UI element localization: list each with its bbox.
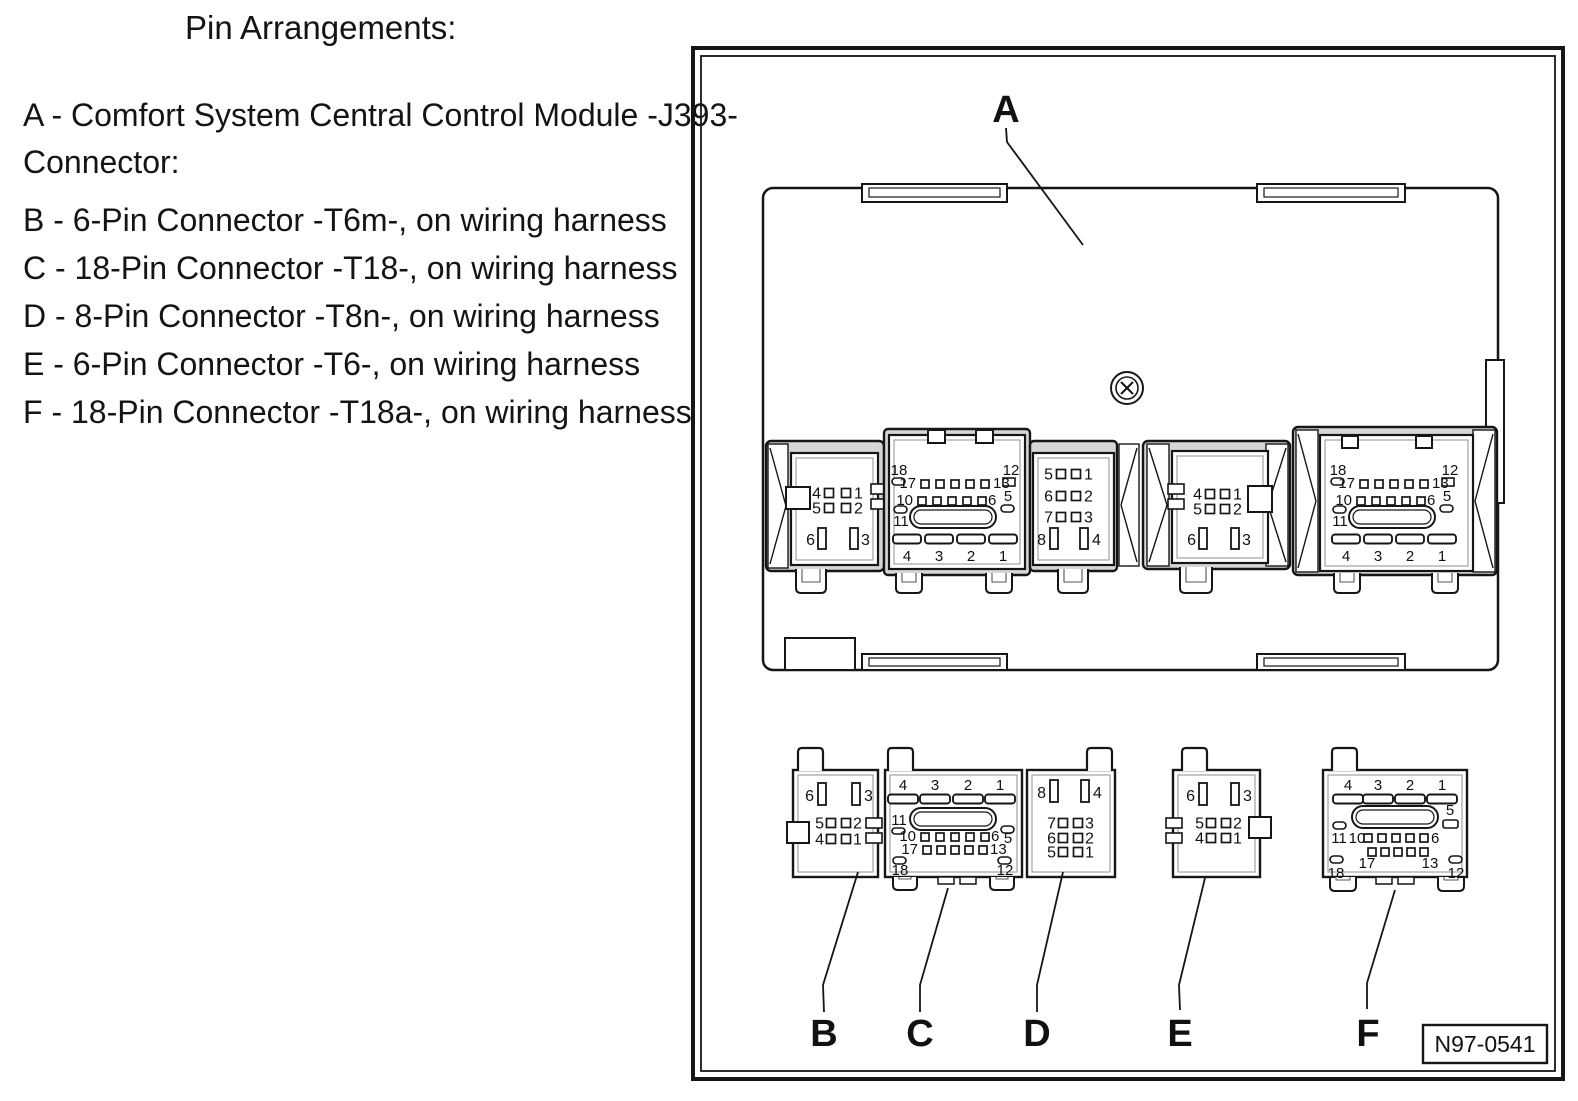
pin-label: 2 (1084, 489, 1093, 506)
leader-e (1179, 878, 1205, 1010)
latch-mark (1168, 484, 1184, 494)
label-a: A (992, 89, 1019, 131)
pin-contact (981, 833, 989, 841)
plug-b: 635241 (787, 748, 882, 877)
latch-wing (1296, 430, 1318, 572)
pin-label: 1 (1084, 467, 1093, 484)
module-socket-f: 181217131065114321 (1293, 427, 1497, 593)
module-tab (1257, 184, 1405, 202)
pin-label: 4 (899, 777, 907, 794)
pin-label: 6 (1044, 489, 1053, 506)
pin-blade (920, 795, 950, 804)
pin-contact (1387, 497, 1395, 505)
pin-blade (1333, 795, 1363, 804)
pin-contact-oval (1449, 856, 1462, 863)
pin-contact-tall (1199, 783, 1207, 805)
module-tab (1257, 654, 1405, 670)
pin-contact (1417, 497, 1425, 505)
pin-contact (842, 819, 851, 828)
pin-contact-oval (1333, 822, 1346, 829)
module-tab (862, 654, 1007, 670)
pin-contact (936, 833, 944, 841)
pin-label: 6 (1431, 830, 1439, 847)
pin-contact-tall (1050, 528, 1058, 549)
pin-contact (1059, 819, 1068, 828)
pin-blade (985, 795, 1015, 804)
pin-contact (1074, 834, 1083, 843)
pin-contact (1402, 497, 1410, 505)
module-socket-d: 51627384 (1030, 441, 1117, 593)
key-notch (1342, 436, 1358, 448)
pin-contact (979, 846, 987, 854)
pin-label: 1 (999, 548, 1007, 565)
pin-label: 2 (1406, 548, 1414, 565)
pin-contact (1360, 480, 1368, 488)
pin-contact-tall (1199, 528, 1207, 549)
pin-label: 6 (805, 788, 814, 805)
mount-bump (960, 877, 976, 884)
pin-label: 3 (864, 788, 873, 805)
pin-label: 6 (806, 532, 815, 549)
pin-label: 4 (1093, 785, 1102, 802)
label-c: C (906, 1013, 933, 1055)
pin-contact (965, 846, 973, 854)
pin-label: 11 (891, 812, 907, 829)
mount-foot (1334, 573, 1360, 593)
leader-f (1367, 890, 1395, 1009)
pin-label: 8 (1037, 532, 1046, 549)
pin-contact-tall (1231, 783, 1239, 805)
pin-contact (1206, 490, 1215, 499)
pin-label: 4 (1092, 532, 1101, 549)
key-slot (1349, 506, 1435, 528)
pin-label: 17 (1359, 855, 1376, 872)
mount-foot (1058, 569, 1088, 593)
pin-contact (825, 489, 834, 498)
pin-contact-tall (852, 783, 860, 805)
mount-bump (1376, 877, 1392, 884)
pin-contact (827, 819, 836, 828)
pin-label: 4 (1344, 777, 1352, 794)
pin-contact (1378, 834, 1386, 842)
pin-contact (937, 846, 945, 854)
pin-label: 12 (997, 862, 1014, 879)
label-f: F (1356, 1013, 1379, 1055)
pin-label: 3 (1374, 548, 1382, 565)
pin-contact-oval (1440, 505, 1453, 512)
pin-contact (981, 480, 989, 488)
pin-blade (1428, 535, 1456, 544)
pin-blade (953, 795, 983, 804)
pin-contact (1207, 819, 1216, 828)
leader-d (1037, 872, 1063, 1012)
pin-contact-tall (818, 783, 826, 805)
pin-contact (1074, 819, 1083, 828)
plug-body (1173, 770, 1260, 877)
module-a: 4152631812171310651143215162738441526318… (763, 184, 1504, 670)
pin-blade (1396, 535, 1424, 544)
pin-label: 7 (1044, 510, 1053, 527)
pin-contact (1074, 848, 1083, 857)
pin-contact (1057, 513, 1066, 522)
pin-label: 2 (967, 548, 975, 565)
pin-contact (1406, 834, 1414, 842)
pin-contact (1405, 480, 1413, 488)
key-slot (910, 506, 996, 528)
leader-b (823, 872, 858, 1012)
pin-contact (918, 497, 926, 505)
pin-blade (1443, 820, 1458, 828)
pin-label: 11 (893, 513, 909, 530)
figure-ref-text: N97-0541 (1434, 1031, 1535, 1057)
pin-label: 13 (1422, 855, 1439, 872)
pin-label: 17 (901, 841, 918, 858)
leader-c (920, 888, 948, 1012)
pin-label: 5 (815, 816, 824, 833)
pin-contact (1057, 470, 1066, 479)
pin-label: 2 (1233, 502, 1242, 519)
pin-contact (825, 504, 834, 513)
pin-contact (966, 833, 974, 841)
pin-contact (1221, 505, 1230, 514)
mount-foot (896, 573, 922, 593)
pin-label: 2 (1406, 777, 1414, 794)
pin-blade (1363, 795, 1393, 804)
pin-label: 2 (964, 777, 972, 794)
pin-contact-oval (1330, 856, 1343, 863)
pin-label: 4 (903, 548, 911, 565)
plug-tab (1332, 748, 1357, 771)
pin-contact (966, 480, 974, 488)
pin-contact (923, 846, 931, 854)
pin-label: 3 (1374, 777, 1382, 794)
pin-contact (933, 497, 941, 505)
pin-label: 3 (861, 532, 870, 549)
pin-contact (1420, 480, 1428, 488)
latch-mark (866, 818, 882, 828)
pin-label: 18 (892, 862, 909, 879)
pin-contact-tall (850, 528, 858, 549)
pin-contact (951, 833, 959, 841)
pin-contact-tall (818, 528, 826, 549)
label-b: B (810, 1013, 837, 1055)
latch-wing (1473, 430, 1495, 572)
pin-contact (1072, 513, 1081, 522)
pin-contact-tall (1050, 780, 1058, 802)
key-notch (786, 487, 810, 509)
pin-label: 5 (1004, 488, 1012, 505)
pin-contact (1207, 834, 1216, 843)
mount-foot (796, 569, 826, 593)
pin-contact-tall (1080, 528, 1088, 549)
pin-label: 17 (899, 475, 916, 492)
pin-contact (1072, 470, 1081, 479)
pin-label: 1 (1438, 777, 1446, 794)
latch-mark (866, 833, 882, 843)
pin-label: 1 (1233, 831, 1242, 848)
pin-contact (1072, 492, 1081, 501)
pin-label: 17 (1338, 475, 1355, 492)
label-e: E (1167, 1013, 1192, 1055)
pin-label: 8 (1037, 785, 1046, 802)
plug-c: 432111106517131812 (885, 748, 1022, 890)
latch-mark (1166, 818, 1182, 828)
pin-blade (989, 535, 1017, 544)
pin-contact (842, 835, 851, 844)
pin-contact (1059, 834, 1068, 843)
module-bottom-block (785, 638, 855, 670)
pin-contact-oval (1001, 505, 1014, 512)
pin-contact (1222, 834, 1231, 843)
pin-label: 1 (1438, 548, 1446, 565)
pin-label: 4 (815, 832, 824, 849)
pin-label: 4 (1342, 548, 1350, 565)
plug-f: 432151110617131812 (1323, 748, 1467, 891)
pin-contact (1221, 490, 1230, 499)
pin-label: 6 (1187, 532, 1196, 549)
pin-contact (951, 846, 959, 854)
pin-blade (1332, 535, 1360, 544)
key-notch (1416, 436, 1432, 448)
pin-contact-tall (1231, 528, 1239, 549)
key-notch (928, 430, 945, 443)
pin-blade (1395, 795, 1425, 804)
latch-wing (1119, 444, 1139, 566)
latch-strip (1119, 444, 1139, 566)
mount-foot (986, 573, 1012, 593)
pin-blade (957, 535, 985, 544)
latch-mark (1168, 499, 1184, 509)
pin-contact (842, 504, 851, 513)
pin-label: 3 (931, 777, 939, 794)
pin-blade (893, 535, 921, 544)
figure-ref-box: N97-0541 (1423, 1025, 1547, 1063)
pin-label: 11 (1332, 513, 1348, 530)
pin-label: 12 (1448, 865, 1465, 882)
pin-contact (921, 480, 929, 488)
key-notch (1249, 817, 1271, 838)
plug-tab (798, 748, 823, 771)
pin-contact (1394, 848, 1402, 856)
mount-bump (938, 877, 954, 884)
mount-bump (1398, 877, 1414, 884)
pin-label: 11 (1331, 830, 1347, 847)
pin-label: 13 (990, 841, 1007, 858)
key-notch (787, 822, 809, 843)
pin-contact (921, 833, 929, 841)
pin-label: 5 (1443, 488, 1451, 505)
plug-tab (1087, 748, 1112, 771)
pin-contact (1375, 480, 1383, 488)
key-notch (1248, 486, 1272, 512)
latch-mark (1166, 833, 1182, 843)
pin-contact (1364, 834, 1372, 842)
pin-contact (1372, 497, 1380, 505)
pin-contact-oval (1333, 506, 1346, 513)
pin-arrangement-diagram: 4152631812171310651143215162738441526318… (0, 0, 1578, 1096)
pin-contact (936, 480, 944, 488)
pin-contact (1059, 848, 1068, 857)
module-tab (862, 184, 1007, 202)
latch-wing (1147, 444, 1169, 566)
pin-label: 5 (1193, 502, 1202, 519)
pin-label: 5 (1047, 845, 1056, 862)
pin-label: 6 (1186, 788, 1195, 805)
pin-label: 1 (1085, 845, 1094, 862)
pin-blade (925, 535, 953, 544)
pin-contact-tall (1081, 780, 1089, 802)
pin-label: 3 (1242, 532, 1251, 549)
pin-contact (827, 835, 836, 844)
module-socket-b: 415263 (766, 441, 887, 593)
pin-contact (1407, 848, 1415, 856)
pin-label: 10 (1349, 830, 1366, 847)
pin-contact (1390, 480, 1398, 488)
key-slot (910, 808, 996, 830)
pin-label: 5 (1446, 802, 1454, 819)
mount-foot (1432, 573, 1458, 593)
label-d: D (1023, 1013, 1050, 1055)
pin-contact (842, 489, 851, 498)
pin-contact (1057, 492, 1066, 501)
plug-e: 635241 (1166, 748, 1271, 877)
pin-label: 5 (812, 501, 821, 518)
pin-contact (1420, 834, 1428, 842)
pin-label: 2 (854, 501, 863, 518)
pin-contact (963, 497, 971, 505)
pin-arrangement-figure: 4152631812171310651143215162738441526318… (0, 0, 1578, 1096)
module-socket-c: 181217131065114321 (884, 429, 1030, 593)
pin-contact (1357, 497, 1365, 505)
pin-contact (1381, 848, 1389, 856)
pin-contact (978, 497, 986, 505)
pin-label: 1 (996, 777, 1004, 794)
pin-contact (1392, 834, 1400, 842)
key-slot (1352, 806, 1438, 828)
key-notch (976, 430, 993, 443)
pin-label: 2 (853, 816, 862, 833)
pin-contact (1222, 819, 1231, 828)
pin-contact (1206, 505, 1215, 514)
pin-contact (951, 480, 959, 488)
pin-label: 3 (1084, 510, 1093, 527)
pin-label: 5 (1044, 467, 1053, 484)
pin-contact-oval (894, 506, 907, 513)
pin-label: 1 (853, 832, 862, 849)
pin-contact (948, 497, 956, 505)
pin-label: 18 (1328, 865, 1345, 882)
screw-icon (1111, 372, 1143, 404)
plug-d: 84736251 (1027, 748, 1115, 877)
pin-blade (1364, 535, 1392, 544)
pin-blade (888, 795, 918, 804)
plug-tab (1182, 748, 1207, 771)
mount-foot (1180, 567, 1212, 593)
pin-label: 3 (1243, 788, 1252, 805)
plug-tab (888, 748, 913, 771)
pin-label: 4 (1195, 831, 1204, 848)
pin-label: 3 (935, 548, 943, 565)
